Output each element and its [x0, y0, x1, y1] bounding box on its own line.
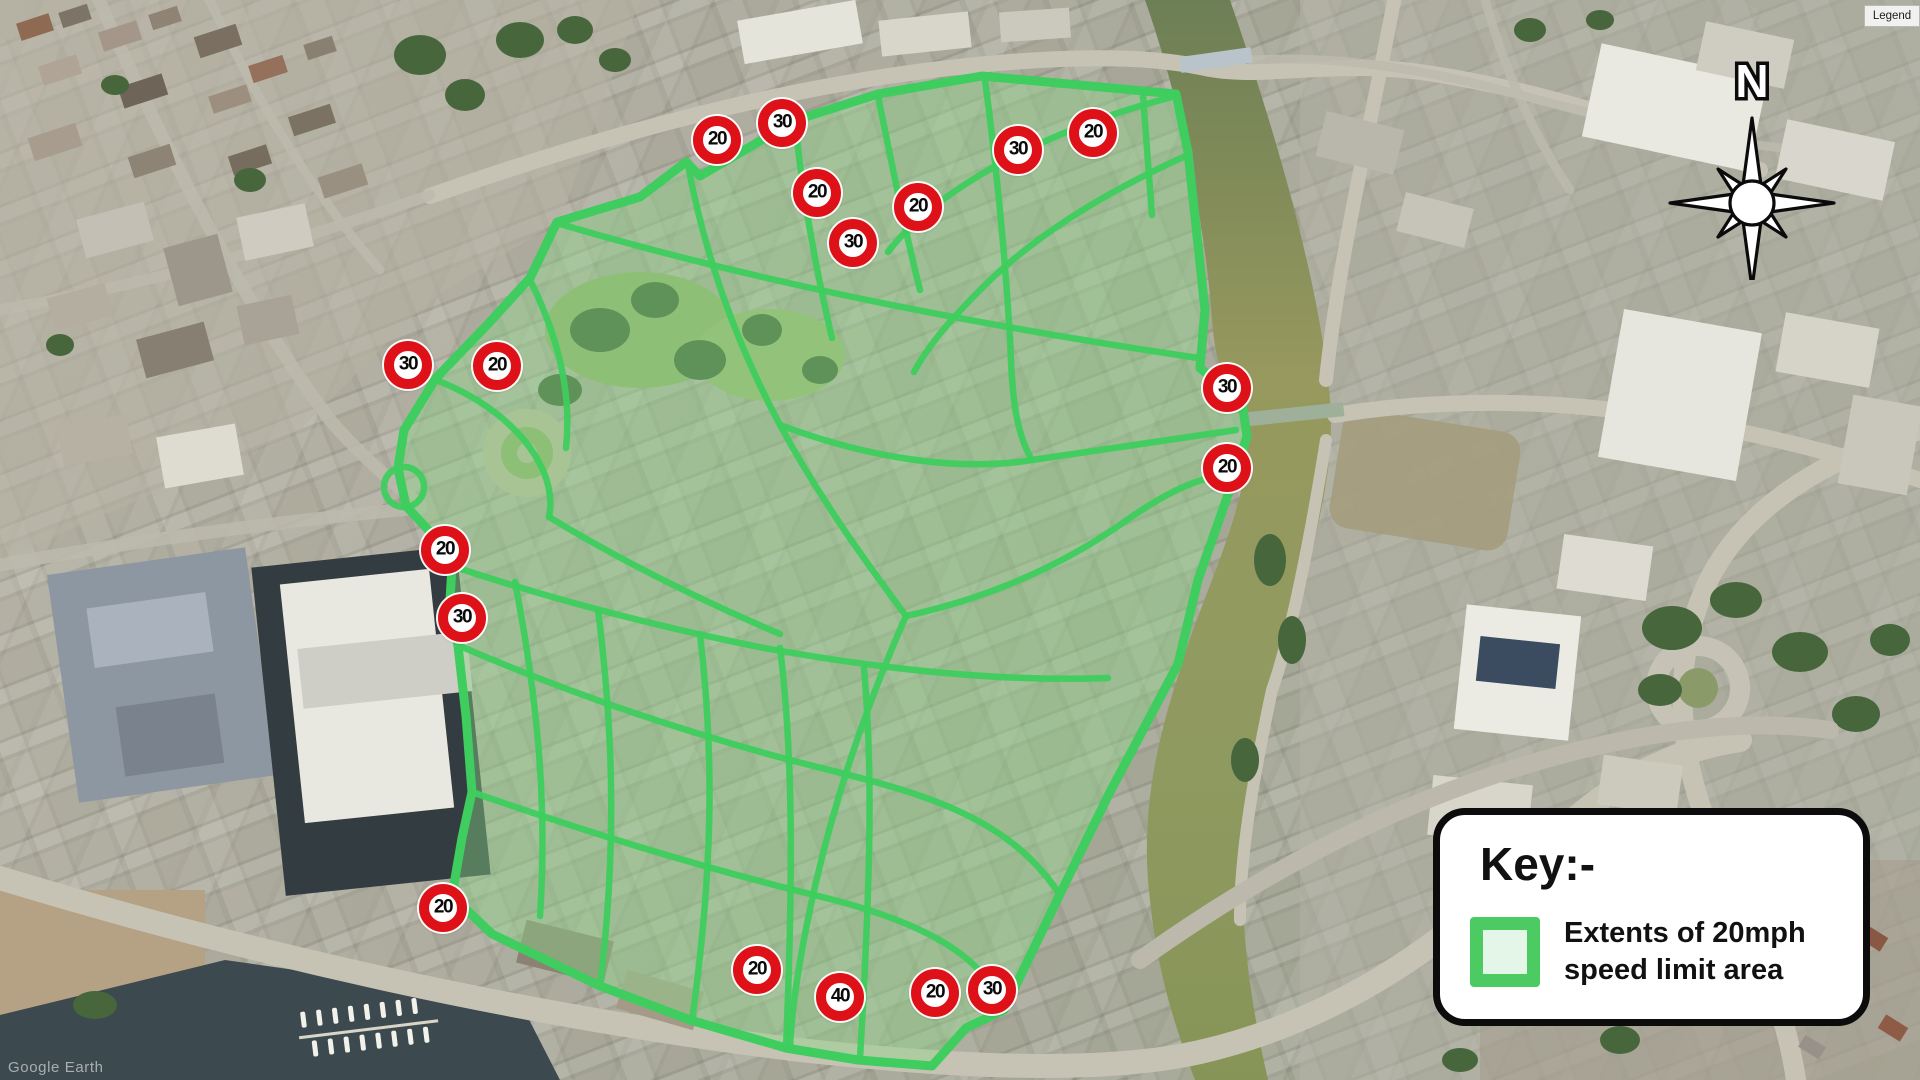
- compass-north-label: N: [1735, 55, 1768, 107]
- aerial-map[interactable]: 203020302030203020302020302020402030 N K…: [0, 0, 1920, 1080]
- zone-extent-label: Extents of 20mph speed limit area: [1564, 915, 1864, 989]
- legend-toggle-button[interactable]: Legend: [1864, 5, 1920, 27]
- google-earth-watermark: Google Earth: [8, 1059, 104, 1076]
- zone-area-fill: [398, 76, 1247, 1066]
- zone-extent-swatch: [1470, 917, 1540, 987]
- compass-star: [1670, 118, 1834, 280]
- key-panel: Key:- Extents of 20mph speed limit area: [1433, 808, 1870, 1026]
- key-panel-title: Key:-: [1480, 837, 1595, 891]
- key-panel-item: Extents of 20mph speed limit area: [1470, 915, 1864, 989]
- compass-rose: N: [1655, 50, 1855, 280]
